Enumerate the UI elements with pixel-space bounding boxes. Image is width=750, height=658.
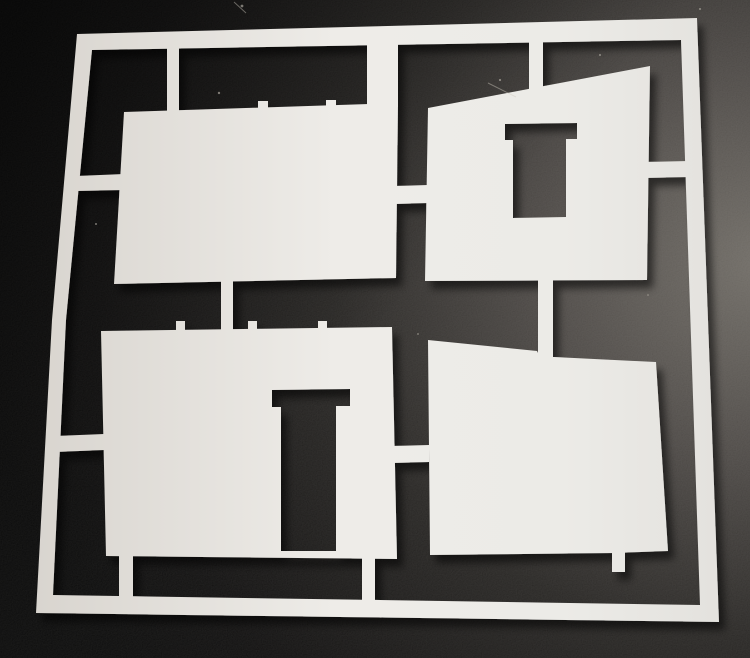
sprue-tab-top-rail-to-panel2: [529, 36, 543, 95]
photo-of-sprue-sheet: [0, 0, 750, 658]
panel-bottom-left-wall-with-door: [101, 327, 397, 559]
dust-speck: [599, 54, 601, 56]
panel-top-left-wall: [114, 103, 398, 284]
panel-bottom-right-wall: [428, 340, 668, 555]
tab-remnant-nub-panel1-b: [326, 100, 336, 108]
sprue-sheet-photo-canvas: [0, 0, 750, 658]
dust-speck: [699, 8, 701, 10]
broken-tab-stub-panel4-bottom: [612, 551, 625, 572]
dust-speck: [241, 5, 244, 8]
tab-remnant-nub-panel3-c: [318, 321, 327, 330]
sprue-tab-panel2-to-panel4: [538, 275, 553, 359]
dust-speck: [499, 79, 501, 81]
sprue-tab-top-rail-to-panel1-left: [167, 43, 179, 112]
dust-speck: [218, 92, 220, 94]
dust-speck: [647, 294, 649, 296]
sprue-tab-left-rail-to-panel1: [76, 174, 124, 191]
sprue-tab-panel1-to-panel3: [221, 276, 233, 332]
dust-speck: [95, 223, 97, 225]
sprue-tab-panel3-to-bottom-rail-left: [119, 554, 133, 602]
sprue-tab-panel3-to-panel4: [392, 445, 429, 463]
sprue-tab-panel2-to-right-rail: [644, 161, 689, 178]
tab-remnant-nub-panel3-a: [176, 321, 185, 330]
sprue-tab-top-rail-to-panel1-right: [367, 40, 398, 108]
tab-remnant-nub-panel3-b: [248, 321, 257, 330]
sprue-tab-panel1-to-panel2: [395, 185, 428, 204]
tab-remnant-nub-panel1-a: [258, 101, 268, 109]
sprue-tab-left-rail-to-panel3: [55, 434, 104, 452]
dust-speck: [417, 333, 419, 335]
sprue-tab-panel3-to-bottom-rail-right: [362, 556, 375, 613]
